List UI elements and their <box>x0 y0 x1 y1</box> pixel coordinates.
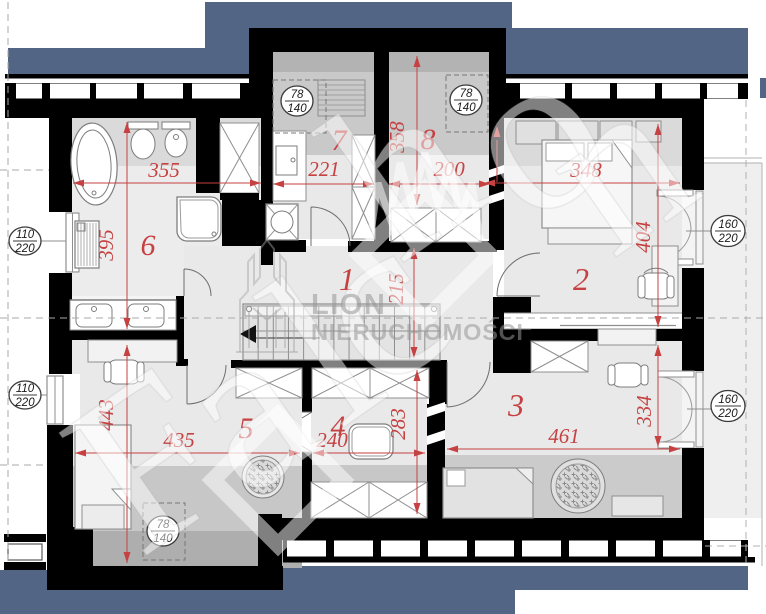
svg-text:355: 355 <box>147 158 180 182</box>
svg-text:461: 461 <box>548 424 580 448</box>
svg-text:6: 6 <box>141 229 156 262</box>
svg-text:334: 334 <box>632 395 656 428</box>
svg-text:220: 220 <box>717 408 738 420</box>
svg-text:220: 220 <box>14 243 35 255</box>
svg-text:160: 160 <box>718 394 738 406</box>
svg-text:110: 110 <box>16 229 35 241</box>
svg-text:LION: LION <box>311 289 386 321</box>
svg-text:2: 2 <box>573 261 589 297</box>
svg-text:3: 3 <box>507 387 524 423</box>
svg-text:395: 395 <box>94 229 118 262</box>
svg-text:NIERUCHOMOŚCI: NIERUCHOMOŚCI <box>311 318 524 345</box>
